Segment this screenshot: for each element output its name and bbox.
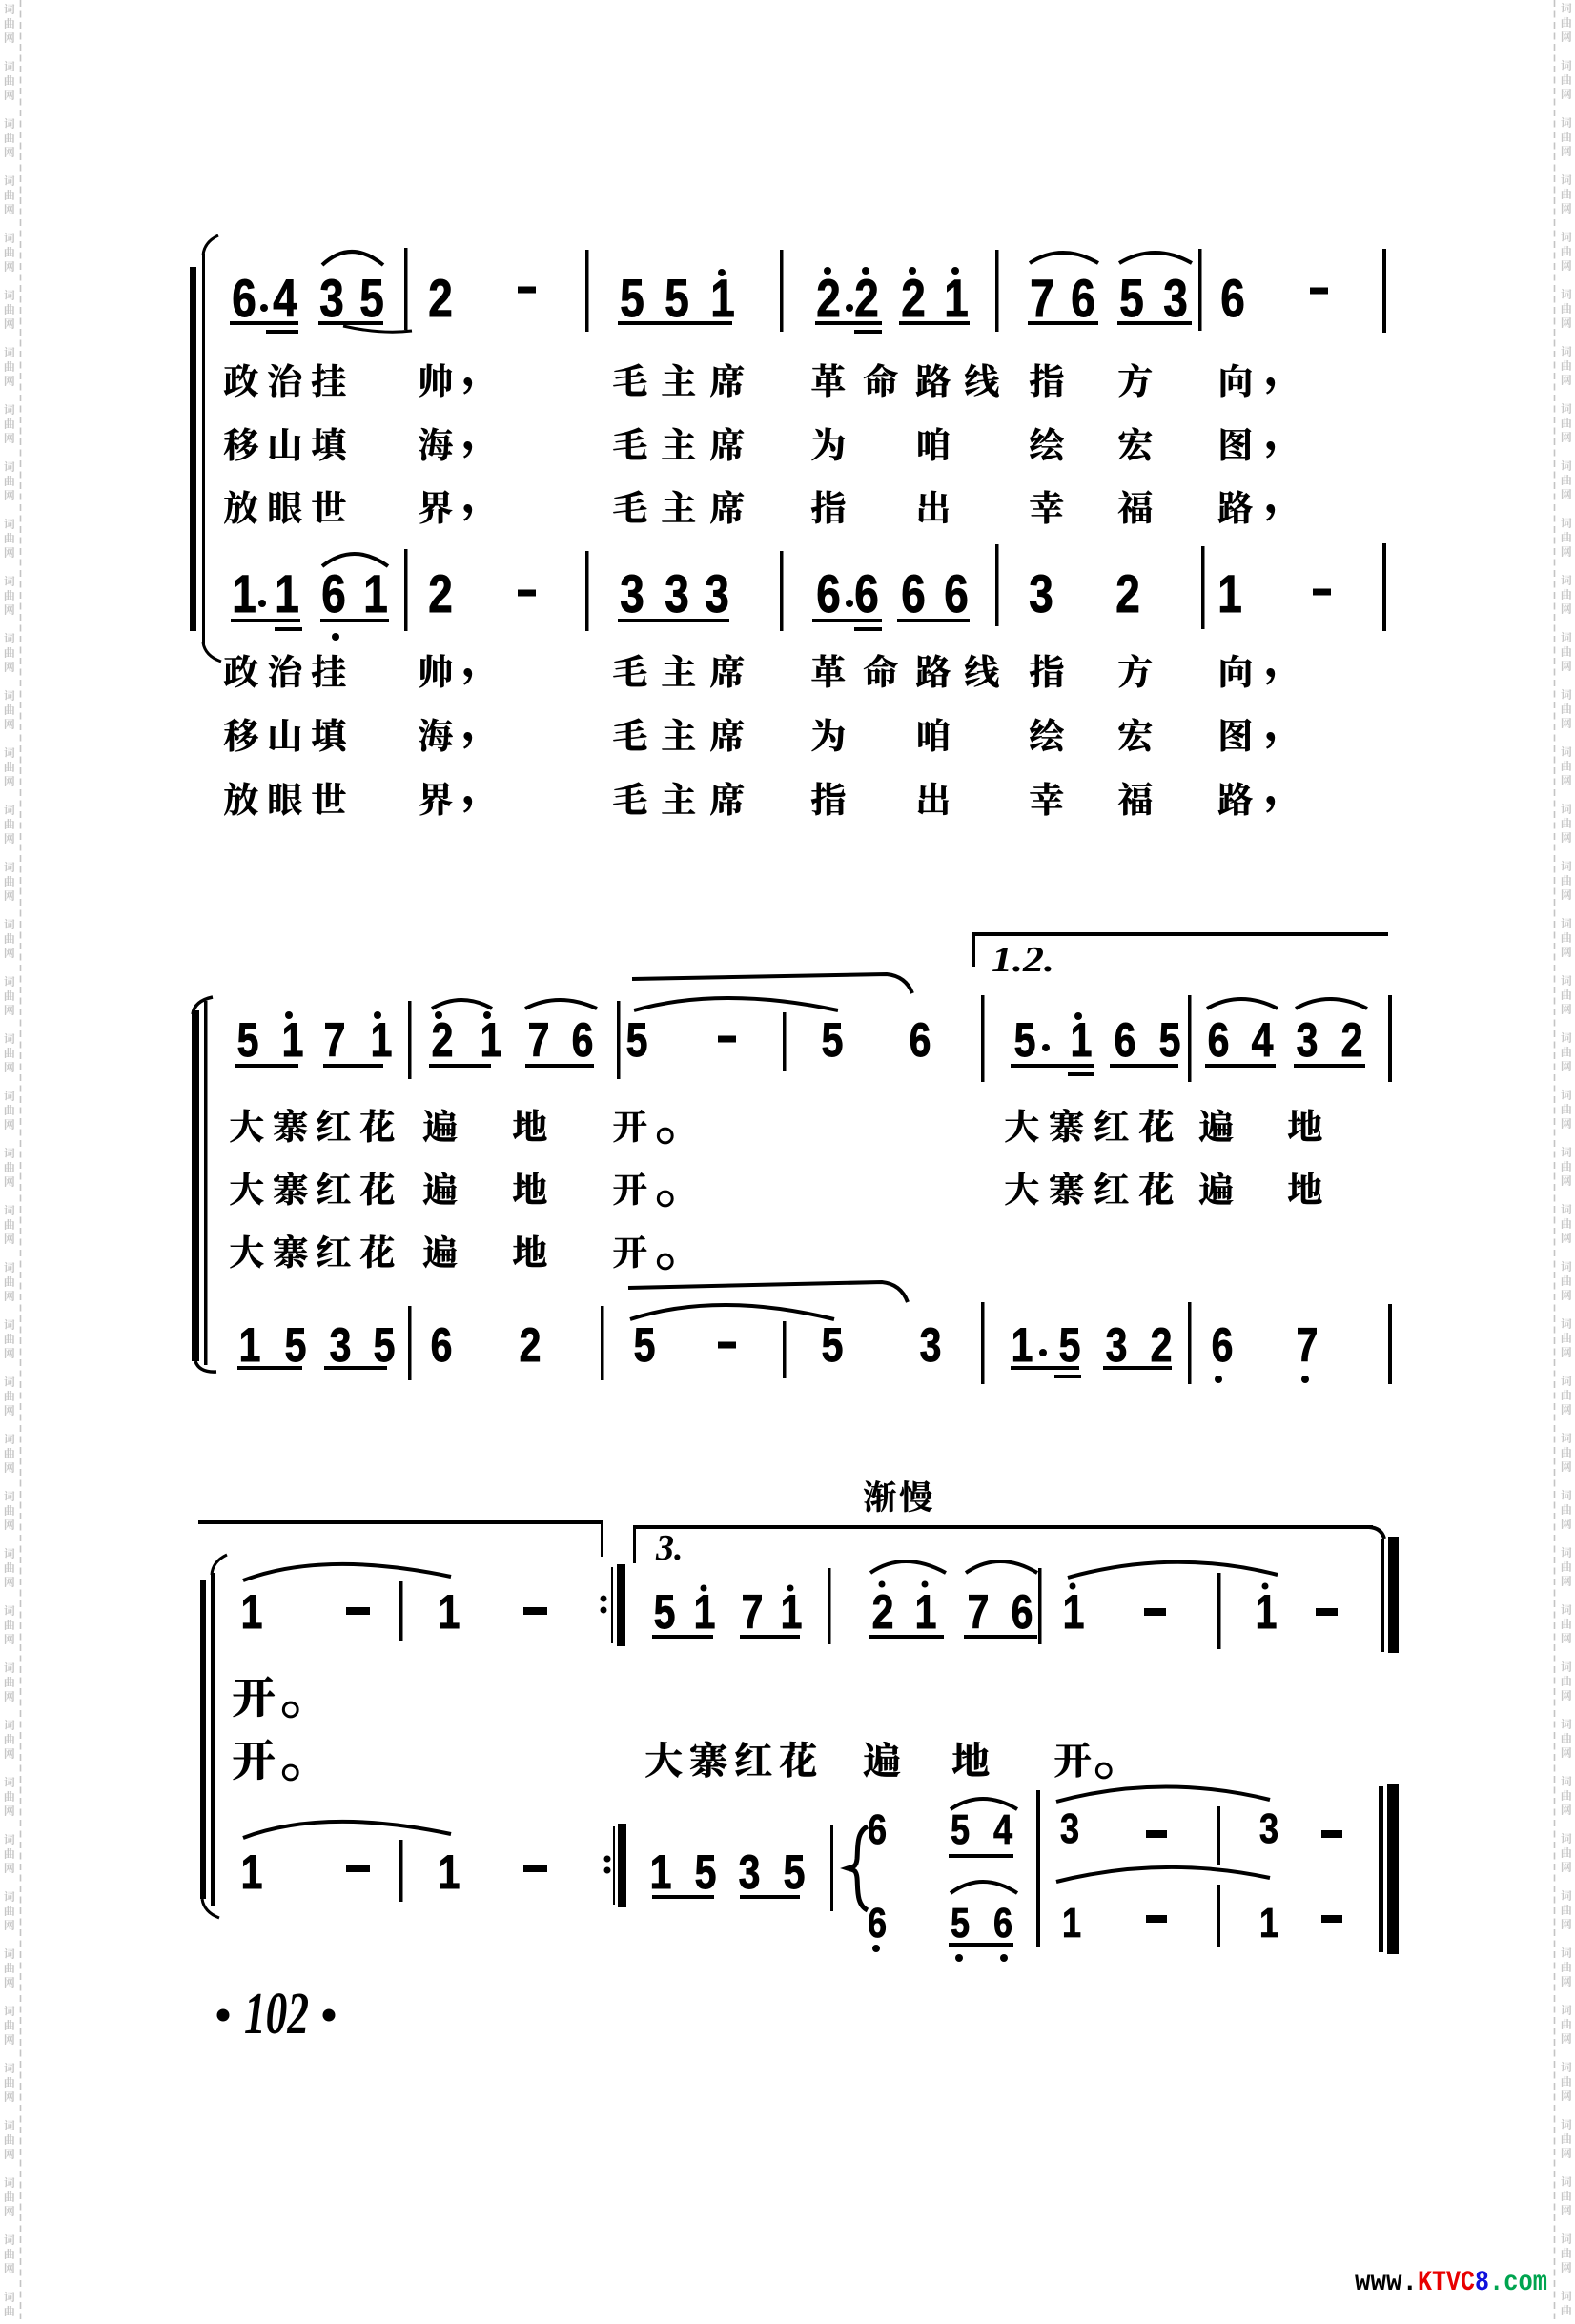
svg-text:5: 5 (359, 269, 384, 328)
svg-text:5: 5 (822, 1013, 844, 1067)
svg-text:5: 5 (1059, 1318, 1081, 1372)
svg-text:3: 3 (1163, 269, 1188, 328)
svg-text:7: 7 (528, 1013, 550, 1067)
svg-text:2: 2 (432, 1013, 454, 1067)
svg-text:3: 3 (1106, 1318, 1128, 1372)
svg-text:5: 5 (695, 1845, 717, 1899)
svg-text:1.2.: 1.2. (992, 940, 1054, 980)
svg-text:1: 1 (241, 1845, 263, 1899)
svg-text:2: 2 (520, 1318, 542, 1372)
svg-text:6: 6 (910, 1013, 931, 1067)
svg-text:1: 1 (781, 1585, 803, 1639)
svg-text:2: 2 (872, 1585, 894, 1639)
svg-text:6: 6 (1115, 1013, 1136, 1067)
svg-text:1: 1 (232, 564, 256, 623)
svg-text:1: 1 (439, 1585, 460, 1639)
svg-text:1: 1 (439, 1845, 460, 1899)
svg-text:6: 6 (1208, 1013, 1230, 1067)
svg-text:6: 6 (816, 564, 841, 623)
svg-text:1: 1 (944, 269, 969, 328)
svg-text:1: 1 (239, 1318, 261, 1372)
svg-text:6: 6 (993, 1900, 1012, 1947)
svg-text:1: 1 (710, 269, 735, 328)
svg-text:6: 6 (868, 1900, 887, 1947)
svg-text:2: 2 (428, 564, 453, 623)
svg-text:6: 6 (854, 564, 879, 623)
svg-text:5: 5 (665, 269, 689, 328)
svg-text:2: 2 (816, 269, 841, 328)
svg-text:1: 1 (1063, 1585, 1085, 1639)
svg-text:6: 6 (868, 1806, 887, 1853)
svg-text:1: 1 (371, 1013, 393, 1067)
svg-text:5: 5 (951, 1900, 970, 1947)
svg-text:6: 6 (1212, 1318, 1234, 1372)
svg-text:3: 3 (665, 564, 689, 623)
svg-text:3.: 3. (655, 1528, 684, 1568)
svg-text:7: 7 (742, 1585, 764, 1639)
svg-text:5: 5 (237, 1013, 259, 1067)
svg-text:7: 7 (1030, 269, 1054, 328)
svg-text:102: 102 (244, 1980, 309, 2047)
svg-text:1: 1 (1259, 1900, 1278, 1947)
svg-text:1: 1 (1217, 564, 1242, 623)
svg-text:3: 3 (920, 1318, 942, 1372)
svg-text:5: 5 (374, 1318, 396, 1372)
svg-text:2: 2 (854, 269, 879, 328)
svg-text:2: 2 (1115, 564, 1140, 623)
svg-text:7: 7 (1297, 1318, 1319, 1372)
svg-text:.com: .com (1489, 2267, 1547, 2299)
svg-text:3: 3 (319, 269, 344, 328)
svg-text:5: 5 (620, 269, 644, 328)
svg-text:5: 5 (634, 1318, 656, 1372)
svg-text:1: 1 (694, 1585, 716, 1639)
svg-text:6: 6 (321, 564, 346, 623)
svg-text:2: 2 (1341, 1013, 1363, 1067)
svg-text:1: 1 (241, 1585, 263, 1639)
svg-text:3: 3 (330, 1318, 352, 1372)
svg-text:2: 2 (901, 269, 926, 328)
svg-text:www.: www. (1355, 2267, 1418, 2299)
svg-text:1: 1 (282, 1013, 304, 1067)
svg-text:1: 1 (1071, 1013, 1093, 1067)
svg-text:2: 2 (1151, 1318, 1173, 1372)
svg-text:6: 6 (1071, 269, 1095, 328)
svg-text:6: 6 (572, 1013, 594, 1067)
svg-text:7: 7 (324, 1013, 346, 1067)
svg-text:7: 7 (968, 1585, 990, 1639)
svg-text:6: 6 (1220, 269, 1245, 328)
svg-text:6: 6 (944, 564, 969, 623)
svg-text:3: 3 (1259, 1805, 1278, 1852)
svg-text:8: 8 (1475, 2267, 1489, 2299)
svg-text:3: 3 (1060, 1805, 1079, 1852)
svg-text:5: 5 (822, 1318, 844, 1372)
svg-text:5: 5 (951, 1806, 970, 1853)
svg-text:6: 6 (901, 564, 926, 623)
svg-text:1: 1 (275, 564, 299, 623)
svg-text:5: 5 (626, 1013, 648, 1067)
svg-text:2: 2 (428, 269, 453, 328)
svg-text:3: 3 (620, 564, 644, 623)
svg-text:1: 1 (650, 1845, 672, 1899)
svg-text:6: 6 (1012, 1585, 1033, 1639)
svg-text:1: 1 (915, 1585, 937, 1639)
svg-text:5: 5 (784, 1845, 806, 1899)
svg-text:5: 5 (1119, 269, 1144, 328)
svg-text:3: 3 (1297, 1013, 1319, 1067)
svg-text:KTVC: KTVC (1418, 2267, 1475, 2299)
svg-text:1: 1 (481, 1013, 502, 1067)
svg-text:5: 5 (654, 1585, 676, 1639)
svg-text:4: 4 (273, 269, 297, 328)
svg-text:3: 3 (705, 564, 729, 623)
svg-text:6: 6 (431, 1318, 453, 1372)
svg-text:1: 1 (1256, 1585, 1278, 1639)
svg-text:1: 1 (1012, 1318, 1033, 1372)
svg-text:1: 1 (363, 564, 388, 623)
svg-text:3: 3 (739, 1845, 761, 1899)
svg-text:5: 5 (1159, 1013, 1181, 1067)
svg-text:4: 4 (1252, 1013, 1274, 1067)
svg-text:5: 5 (285, 1318, 307, 1372)
svg-text:4: 4 (993, 1806, 1013, 1853)
svg-text:3: 3 (1029, 564, 1053, 623)
svg-text:6: 6 (232, 269, 256, 328)
svg-text:1: 1 (1062, 1900, 1081, 1947)
svg-text:5: 5 (1014, 1013, 1036, 1067)
